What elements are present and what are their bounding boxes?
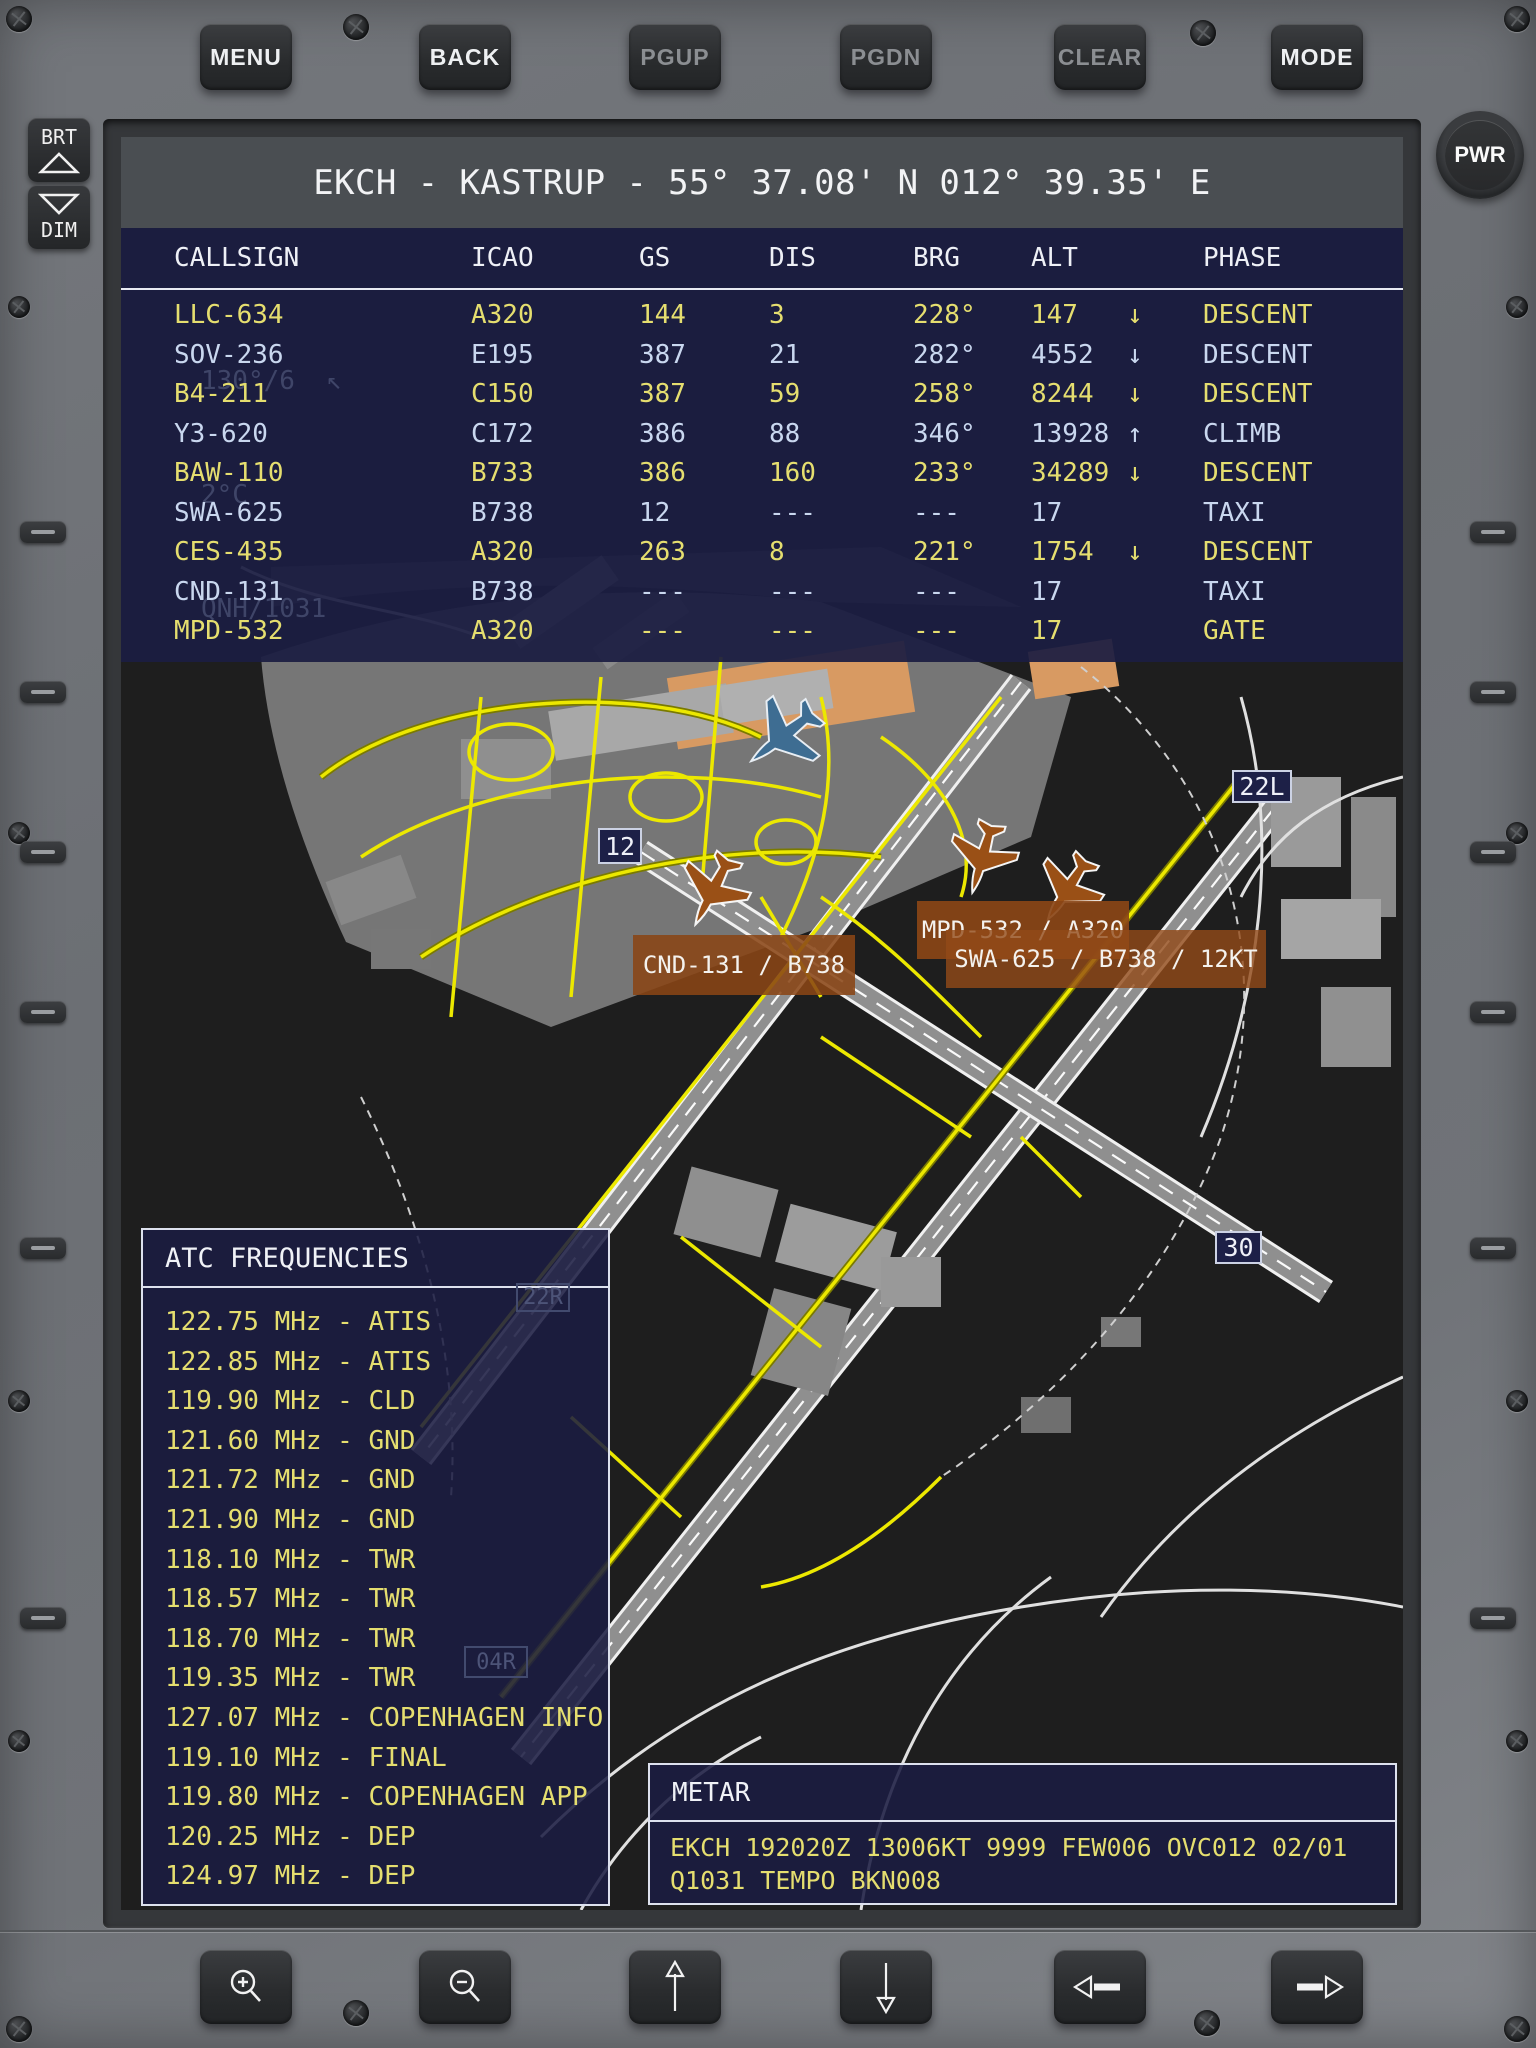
cell-icao: B733 bbox=[471, 454, 639, 494]
pgdn-button-label: PGDN bbox=[851, 44, 921, 71]
cell-alt: 13928 bbox=[1031, 415, 1127, 455]
screen-recess: 12 22L 30 MPD-532 / A320 SWA-625 / B738 … bbox=[103, 119, 1421, 1928]
list-item: 121.72 MHz - GND bbox=[165, 1461, 604, 1501]
cell-dis: 21 bbox=[769, 336, 913, 376]
list-item: 121.90 MHz - GND bbox=[165, 1501, 604, 1541]
cell-gs: 387 bbox=[639, 375, 769, 415]
col-brg: BRG bbox=[913, 228, 1031, 288]
runway-label-text: 04R bbox=[476, 1650, 516, 1675]
list-item: 119.80 MHz - COPENHAGEN APP bbox=[165, 1778, 604, 1818]
arrow-right-icon bbox=[1289, 1973, 1345, 2001]
arrow-left-icon bbox=[1072, 1973, 1128, 2001]
arrow-down-icon bbox=[873, 1960, 899, 2014]
cell-callsign: SOV-236 bbox=[174, 336, 471, 376]
list-item: 127.07 MHz - COPENHAGEN INFO bbox=[165, 1699, 604, 1739]
screw-icon bbox=[343, 14, 369, 40]
side-button-right-4[interactable] bbox=[1470, 1001, 1516, 1023]
trend-arrow-icon bbox=[1127, 494, 1203, 534]
trend-arrow-icon bbox=[1127, 612, 1203, 652]
col-alt: ALT bbox=[1031, 228, 1127, 288]
triangle-up-icon bbox=[36, 151, 82, 175]
screw-icon bbox=[1504, 2016, 1530, 2042]
cell-brg: 282° bbox=[913, 336, 1031, 376]
title-bar: EKCH - KASTRUP - 55° 37.08' N 012° 39.35… bbox=[121, 137, 1403, 228]
runway-label-22l: 22L bbox=[1232, 770, 1292, 803]
cell-dis: 8 bbox=[769, 533, 913, 573]
atc-panel-title: ATC FREQUENCIES bbox=[165, 1243, 409, 1274]
mode-button-label: MODE bbox=[1281, 44, 1354, 71]
col-dis: DIS bbox=[769, 228, 913, 288]
cell-dis: --- bbox=[769, 494, 913, 534]
table-row[interactable]: BAW-110B733386160233°34289↓DESCENT bbox=[121, 454, 1403, 494]
cell-phase: TAXI bbox=[1203, 573, 1403, 613]
magnifier-plus-icon bbox=[223, 1963, 269, 2011]
table-row[interactable]: LLC-634A3201443228°147↓DESCENT bbox=[121, 296, 1403, 336]
table-row[interactable]: SOV-236E19538721282°4552↓DESCENT bbox=[121, 336, 1403, 376]
list-item: 121.60 MHz - GND bbox=[165, 1422, 604, 1462]
cell-callsign: CES-435 bbox=[174, 533, 471, 573]
side-button-right-6[interactable] bbox=[1470, 1607, 1516, 1629]
cell-callsign: SWA-625 bbox=[174, 494, 471, 534]
cell-callsign: Y3-620 bbox=[174, 415, 471, 455]
cell-callsign: BAW-110 bbox=[174, 454, 471, 494]
cell-brg: --- bbox=[913, 573, 1031, 613]
list-item: 122.85 MHz - ATIS bbox=[165, 1343, 604, 1383]
metar-text: EKCH 192020Z 13006KT 9999 FEW006 OVC012 … bbox=[650, 1822, 1397, 1897]
side-button-right-1[interactable] bbox=[1470, 521, 1516, 543]
power-button-label: PWR bbox=[1454, 142, 1505, 168]
cell-phase: DESCENT bbox=[1203, 375, 1403, 415]
metar-panel-title: METAR bbox=[672, 1778, 750, 1808]
trend-arrow-icon: ↓ bbox=[1127, 533, 1203, 573]
aircraft-tag-text: SWA-625 / B738 / 12KT bbox=[954, 945, 1257, 973]
trend-arrow-icon: ↑ bbox=[1127, 415, 1203, 455]
metar-panel: METAR EKCH 192020Z 13006KT 9999 FEW006 O… bbox=[648, 1763, 1397, 1905]
side-button-right-2[interactable] bbox=[1470, 681, 1516, 703]
cell-alt: 8244 bbox=[1031, 375, 1127, 415]
runway-label-12: 12 bbox=[598, 828, 642, 864]
screw-icon bbox=[1190, 20, 1216, 46]
col-phase: PHASE bbox=[1203, 228, 1403, 288]
cell-gs: 386 bbox=[639, 454, 769, 494]
menu-button-label: MENU bbox=[210, 44, 282, 71]
cell-alt: 4552 bbox=[1031, 336, 1127, 376]
side-button-right-5[interactable] bbox=[1470, 1237, 1516, 1259]
runway-label-22r-faint: 22R bbox=[516, 1283, 570, 1312]
cell-alt: 17 bbox=[1031, 494, 1127, 534]
traffic-table-header: CALLSIGN ICAO GS DIS BRG ALT PHASE bbox=[121, 228, 1403, 290]
power-button-ring: PWR bbox=[1436, 111, 1524, 199]
cell-brg: 233° bbox=[913, 454, 1031, 494]
list-item: 118.57 MHz - TWR bbox=[165, 1580, 604, 1620]
side-button-left-5[interactable] bbox=[20, 1237, 66, 1259]
cell-callsign: B4-211 bbox=[174, 375, 471, 415]
cell-gs: --- bbox=[639, 573, 769, 613]
side-button-left-4[interactable] bbox=[20, 1001, 66, 1023]
screw-icon bbox=[6, 2016, 32, 2042]
cell-dis: --- bbox=[769, 573, 913, 613]
cell-icao: E195 bbox=[471, 336, 639, 376]
cell-dis: 3 bbox=[769, 296, 913, 336]
trend-arrow-icon: ↓ bbox=[1127, 375, 1203, 415]
pan-left-button[interactable] bbox=[1054, 1950, 1146, 2024]
cell-gs: --- bbox=[639, 612, 769, 652]
aircraft-tag-cnd[interactable]: CND-131 / B738 bbox=[633, 935, 855, 995]
atc-panel-header: ATC FREQUENCIES bbox=[143, 1230, 608, 1288]
cell-gs: 386 bbox=[639, 415, 769, 455]
table-row[interactable]: SWA-625B73812------17TAXI bbox=[121, 494, 1403, 534]
pan-down-button[interactable] bbox=[840, 1950, 932, 2024]
cell-alt: 17 bbox=[1031, 612, 1127, 652]
side-button-left-2[interactable] bbox=[20, 681, 66, 703]
screw-icon bbox=[8, 296, 30, 318]
cell-gs: 144 bbox=[639, 296, 769, 336]
cell-brg: --- bbox=[913, 494, 1031, 534]
trend-arrow-icon: ↓ bbox=[1127, 454, 1203, 494]
cell-dis: 88 bbox=[769, 415, 913, 455]
col-callsign: CALLSIGN bbox=[174, 228, 471, 288]
cell-dis: 160 bbox=[769, 454, 913, 494]
trend-arrow-icon: ↓ bbox=[1127, 336, 1203, 376]
cell-callsign: LLC-634 bbox=[174, 296, 471, 336]
cell-icao: A320 bbox=[471, 533, 639, 573]
cell-icao: C150 bbox=[471, 375, 639, 415]
list-item: 120.25 MHz - DEP bbox=[165, 1818, 604, 1858]
runway-label-04r-faint: 04R bbox=[464, 1646, 528, 1678]
page-title: EKCH - KASTRUP - 55° 37.08' N 012° 39.35… bbox=[313, 163, 1210, 203]
arrow-up-icon bbox=[662, 1960, 688, 2014]
cell-phase: TAXI bbox=[1203, 494, 1403, 534]
cell-gs: 263 bbox=[639, 533, 769, 573]
back-button-label: BACK bbox=[430, 44, 500, 71]
table-row[interactable]: B4-211C15038759258°8244↓DESCENT bbox=[121, 375, 1403, 415]
side-button-left-1[interactable] bbox=[20, 521, 66, 543]
display-unit-bezel: MENU BACK PGUP PGDN CLEAR MODE BRT DIM P… bbox=[0, 0, 1536, 2048]
table-row[interactable]: CND-131B738---------17TAXI bbox=[121, 573, 1403, 613]
pgup-button-label: PGUP bbox=[640, 44, 709, 71]
back-button[interactable]: BACK bbox=[419, 24, 511, 90]
aircraft-tag-swa[interactable]: SWA-625 / B738 / 12KT bbox=[946, 930, 1266, 988]
cell-phase: GATE bbox=[1203, 612, 1403, 652]
pgup-button[interactable]: PGUP bbox=[629, 24, 721, 90]
metar-panel-header: METAR bbox=[650, 1765, 1395, 1822]
cell-icao: B738 bbox=[471, 494, 639, 534]
dim-label: DIM bbox=[41, 218, 77, 242]
zoom-out-button[interactable] bbox=[419, 1950, 511, 2024]
list-item: 118.70 MHz - TWR bbox=[165, 1620, 604, 1660]
col-gs: GS bbox=[639, 228, 769, 288]
list-item: 124.97 MHz - DEP bbox=[165, 1857, 604, 1897]
brightness-controls: BRT DIM bbox=[28, 118, 90, 249]
cell-phase: DESCENT bbox=[1203, 296, 1403, 336]
screw-icon bbox=[343, 2000, 369, 2026]
cell-alt: 17 bbox=[1031, 573, 1127, 613]
cell-callsign: CND-131 bbox=[174, 573, 471, 613]
cell-dis: --- bbox=[769, 612, 913, 652]
cell-phase: DESCENT bbox=[1203, 336, 1403, 376]
cell-brg: 221° bbox=[913, 533, 1031, 573]
cell-brg: 228° bbox=[913, 296, 1031, 336]
pan-right-button[interactable] bbox=[1271, 1950, 1363, 2024]
cell-phase: DESCENT bbox=[1203, 454, 1403, 494]
cell-phase: DESCENT bbox=[1203, 533, 1403, 573]
screw-icon bbox=[8, 1390, 30, 1412]
runway-label-text: 12 bbox=[605, 832, 635, 861]
brightness-up-button[interactable]: BRT bbox=[28, 118, 90, 182]
cell-gs: 387 bbox=[639, 336, 769, 376]
pgdn-button[interactable]: PGDN bbox=[840, 24, 932, 90]
list-item: 118.10 MHz - TWR bbox=[165, 1541, 604, 1581]
magnifier-minus-icon bbox=[442, 1963, 488, 2011]
cell-icao: A320 bbox=[471, 296, 639, 336]
clear-button[interactable]: CLEAR bbox=[1054, 24, 1146, 90]
mode-button[interactable]: MODE bbox=[1271, 24, 1363, 90]
runway-label-text: 22R bbox=[523, 1285, 563, 1310]
cell-alt: 147 bbox=[1031, 296, 1127, 336]
cell-gs: 12 bbox=[639, 494, 769, 534]
cell-alt: 34289 bbox=[1031, 454, 1127, 494]
screw-icon bbox=[1504, 6, 1530, 32]
list-item: 119.90 MHz - CLD bbox=[165, 1382, 604, 1422]
clear-button-label: CLEAR bbox=[1058, 44, 1142, 71]
runway-label-text: 22L bbox=[1239, 772, 1284, 801]
list-item: 119.35 MHz - TWR bbox=[165, 1659, 604, 1699]
cell-icao: C172 bbox=[471, 415, 639, 455]
side-button-right-3[interactable] bbox=[1470, 841, 1516, 863]
cell-phase: CLIMB bbox=[1203, 415, 1403, 455]
zoom-in-button[interactable] bbox=[200, 1950, 292, 2024]
screw-icon bbox=[6, 6, 32, 32]
screw-icon bbox=[1194, 2010, 1220, 2036]
menu-button[interactable]: MENU bbox=[200, 24, 292, 90]
runway-label-text: 30 bbox=[1223, 1233, 1253, 1262]
cell-icao: A320 bbox=[471, 612, 639, 652]
screw-icon bbox=[1506, 296, 1528, 318]
table-row[interactable]: MPD-532A320---------17GATE bbox=[121, 612, 1403, 652]
cell-brg: 258° bbox=[913, 375, 1031, 415]
traffic-table: 130°/6 ↖ 2°C QNH/1031 CALLSIGN ICAO GS D… bbox=[121, 228, 1403, 662]
side-button-left-3[interactable] bbox=[20, 841, 66, 863]
col-trend bbox=[1127, 228, 1203, 288]
aircraft-tag-text: CND-131 / B738 bbox=[643, 951, 845, 979]
cell-alt: 1754 bbox=[1031, 533, 1127, 573]
bezel-seam bbox=[0, 1930, 1536, 1932]
traffic-table-body: LLC-634A3201443228°147↓DESCENT SOV-236E1… bbox=[121, 290, 1403, 652]
runway-label-30: 30 bbox=[1215, 1231, 1262, 1264]
trend-arrow-icon bbox=[1127, 573, 1203, 613]
trend-arrow-icon: ↓ bbox=[1127, 296, 1203, 336]
screw-icon bbox=[1506, 1390, 1528, 1412]
power-button[interactable]: PWR bbox=[1445, 120, 1515, 190]
table-row[interactable]: CES-435A3202638221°1754↓DESCENT bbox=[121, 533, 1403, 573]
cell-brg: 346° bbox=[913, 415, 1031, 455]
brt-label: BRT bbox=[41, 125, 77, 149]
cell-icao: B738 bbox=[471, 573, 639, 613]
side-button-left-6[interactable] bbox=[20, 1607, 66, 1629]
col-icao: ICAO bbox=[471, 228, 639, 288]
screw-icon bbox=[8, 1730, 30, 1752]
cell-brg: --- bbox=[913, 612, 1031, 652]
list-item: 119.10 MHz - FINAL bbox=[165, 1739, 604, 1779]
brightness-down-button[interactable]: DIM bbox=[28, 185, 90, 249]
screw-icon bbox=[1506, 1730, 1528, 1752]
table-row[interactable]: Y3-620C17238688346°13928↑CLIMB bbox=[121, 415, 1403, 455]
cell-dis: 59 bbox=[769, 375, 913, 415]
cell-callsign: MPD-532 bbox=[174, 612, 471, 652]
pan-up-button[interactable] bbox=[629, 1950, 721, 2024]
atc-frequencies-panel: ATC FREQUENCIES 122.75 MHz - ATIS 122.85… bbox=[141, 1228, 610, 1906]
display-screen: 12 22L 30 MPD-532 / A320 SWA-625 / B738 … bbox=[121, 137, 1403, 1910]
triangle-down-icon bbox=[36, 192, 82, 216]
atc-frequency-list: 122.75 MHz - ATIS 122.85 MHz - ATIS 119.… bbox=[143, 1288, 608, 1897]
